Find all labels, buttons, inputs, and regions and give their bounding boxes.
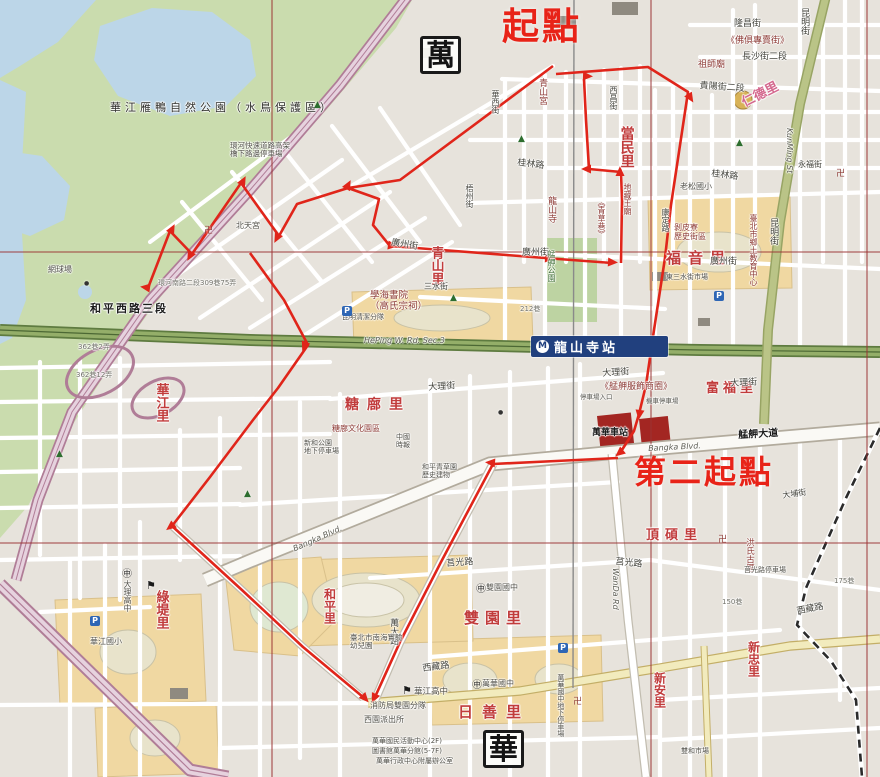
map-label: 莒光路停車場: [744, 567, 786, 575]
map-label: 《佛俱專賣街》: [726, 36, 789, 46]
map-label: 萬華國中地下停車場: [556, 674, 564, 737]
map-label: 臺北市鄉土教育中心: [748, 214, 757, 286]
swastika-icon: 卍: [718, 536, 727, 545]
map-label: KunMing St: [784, 128, 793, 173]
tree-icon: ▲: [314, 101, 321, 110]
map-label: 212巷: [520, 306, 540, 314]
map-label: 大理高中: [122, 580, 131, 612]
map-label: 糖廍里: [345, 398, 411, 414]
map-label: 華江國小: [90, 638, 122, 647]
map-label: 西園派出所: [364, 716, 404, 725]
map-label: 萬華車站: [592, 428, 628, 438]
map-label: 昆明街: [799, 8, 809, 35]
tree-icon: ▲: [518, 135, 525, 144]
second-origin-label: 第二起點: [634, 455, 774, 491]
map-label: 西藏路: [796, 602, 824, 617]
map-label: 桂林路: [711, 169, 739, 182]
map-label: 西藏路: [422, 661, 450, 674]
map-label: 150巷: [722, 599, 742, 607]
map-label: 艋舺大道: [738, 428, 779, 441]
map-label: 廣州街: [390, 238, 418, 252]
map-viewport[interactable]: 起點第二起點萬華青山里當民里福音里仁德里富福里頂碩里新安里新忠里日善里雙園里綠堤…: [0, 0, 880, 777]
map-label: 和平青草園 歷史建物: [422, 464, 457, 480]
dot-icon: ●: [498, 410, 503, 416]
map-label: 《艋舺服飾商圈》: [600, 382, 672, 392]
map-label: 環河快速道路高架 橋下路邊停車場: [230, 142, 290, 159]
map-label: 西昌街: [608, 86, 617, 110]
map-label: 大理街: [602, 367, 630, 379]
map-label: 仁德里: [740, 80, 781, 111]
map-label: 大埔街: [782, 489, 807, 501]
map-label: 廣州街: [522, 248, 549, 258]
map-label: 三水街: [424, 283, 448, 292]
map-label: 停車場入口: [580, 394, 613, 401]
dot-icon: ●: [84, 281, 89, 287]
map-labels-layer: 起點第二起點萬華青山里當民里福音里仁德里富福里頂碩里新安里新忠里日善里雙園里綠堤…: [0, 0, 880, 777]
map-label: 新和公園 地下停車場: [304, 440, 339, 456]
map-label: 學海書院 （高氏宗祠）: [370, 291, 427, 312]
map-label: 雙園國中: [486, 584, 518, 593]
tree-icon: ▲: [244, 490, 251, 499]
swastika-icon: 卍: [573, 698, 582, 707]
map-label: 青山里: [428, 246, 443, 285]
map-label: 《青草巷》: [596, 198, 605, 238]
flag-icon: ⚑: [146, 580, 156, 591]
map-label: 萬華行政中心附屬辦公室: [376, 758, 453, 766]
map-label: 華江雁鴨自然公園（水鳥保護區）: [110, 102, 335, 114]
map-label: 環河南路二段309巷75弄: [158, 280, 236, 288]
school-icon: ㊥: [476, 585, 486, 595]
map-label: 北天宮: [236, 222, 260, 231]
map-label: 青山宮: [537, 78, 547, 105]
map-label: 桂林路: [517, 158, 545, 171]
map-label: 當民里: [618, 126, 634, 168]
map-label: 龍山寺: [546, 196, 556, 223]
map-label: 華西街: [490, 90, 499, 114]
map-label: 華江高中: [414, 688, 448, 698]
map-label: 和平里: [322, 588, 335, 624]
map-label: Bangka Blvd.: [292, 525, 344, 555]
school-icon: ㊥: [122, 570, 132, 580]
map-label: 圖書館萬華分館(5-7F): [372, 748, 442, 756]
map-label: 消防局雙園分隊: [370, 702, 426, 711]
parking-icon: P: [342, 306, 352, 316]
map-label: 地藏王廟: [622, 183, 631, 215]
map-label: 萬華國中: [482, 680, 514, 689]
map-label: 糖廍文化園區: [332, 425, 380, 434]
map-label: 華江里: [153, 383, 168, 422]
map-label: 長沙街二段: [742, 52, 787, 62]
station-name: 龍山寺站: [554, 337, 618, 356]
map-label: 機車停車場: [646, 398, 679, 405]
map-label: 梧州街: [464, 184, 473, 208]
tree-icon: ▲: [56, 450, 63, 459]
map-label: 雙和市場: [681, 748, 709, 756]
map-label: 新安里: [652, 672, 665, 708]
longshan-station-bar[interactable]: M 龍山寺站: [531, 336, 668, 357]
map-label: 萬華國民活動中心(2F): [372, 738, 442, 746]
map-label: 貴陽街二段: [699, 81, 745, 94]
map-label: 昆明街: [768, 218, 778, 245]
map-label: HePing W. Rd. Sec.3: [364, 337, 445, 346]
map-label: 永福街: [798, 161, 822, 170]
map-label: 東三水街市場: [666, 274, 708, 282]
map-label: 廣州街: [710, 257, 737, 267]
map-label: 隆昌街: [734, 19, 761, 29]
map-label: 和平西路三段: [90, 303, 168, 315]
school-icon: ㊥: [472, 681, 482, 691]
map-label: 臺北市南海實驗 幼兒園: [350, 634, 403, 651]
parking-icon: P: [90, 616, 100, 626]
metro-logo-icon: M: [536, 340, 549, 353]
origin-label: 起點: [502, 6, 582, 47]
map-label: 大理街: [730, 378, 758, 389]
map-label: 剝皮寮 歷史街區: [674, 224, 706, 242]
parking-icon: P: [714, 291, 724, 301]
map-label: 雙園里: [464, 610, 527, 627]
map-label: 大理街: [428, 381, 456, 393]
hua-district-label: 華: [483, 730, 524, 768]
map-label: 康定路: [660, 208, 669, 232]
map-label: 祖師廟: [698, 60, 725, 70]
map-label: 中國 時報: [396, 434, 410, 450]
map-label: 362巷12弄: [76, 372, 112, 380]
map-label: 頂碩里: [646, 529, 703, 544]
map-label: 綠堤里: [153, 590, 168, 629]
tree-icon: ▲: [736, 139, 743, 148]
swastika-icon: 卍: [836, 170, 845, 179]
flag-icon: ⚑: [402, 685, 412, 696]
swastika-icon: 卍: [204, 227, 213, 236]
map-label: 艋舺公園: [546, 250, 555, 282]
map-label: 老松國小: [680, 183, 712, 192]
parking-icon: P: [558, 643, 568, 653]
map-label: 日善里: [458, 704, 530, 721]
map-label: 175巷: [834, 578, 854, 586]
map-label: WanDa Rd: [610, 568, 619, 610]
tree-icon: ▲: [450, 294, 457, 303]
map-label: 新忠里: [746, 641, 759, 677]
map-label: 莒光路: [446, 557, 474, 569]
map-label: 網球場: [48, 266, 72, 275]
map-label: 362巷2弄: [78, 344, 110, 352]
wan-district-label: 萬: [420, 36, 461, 74]
